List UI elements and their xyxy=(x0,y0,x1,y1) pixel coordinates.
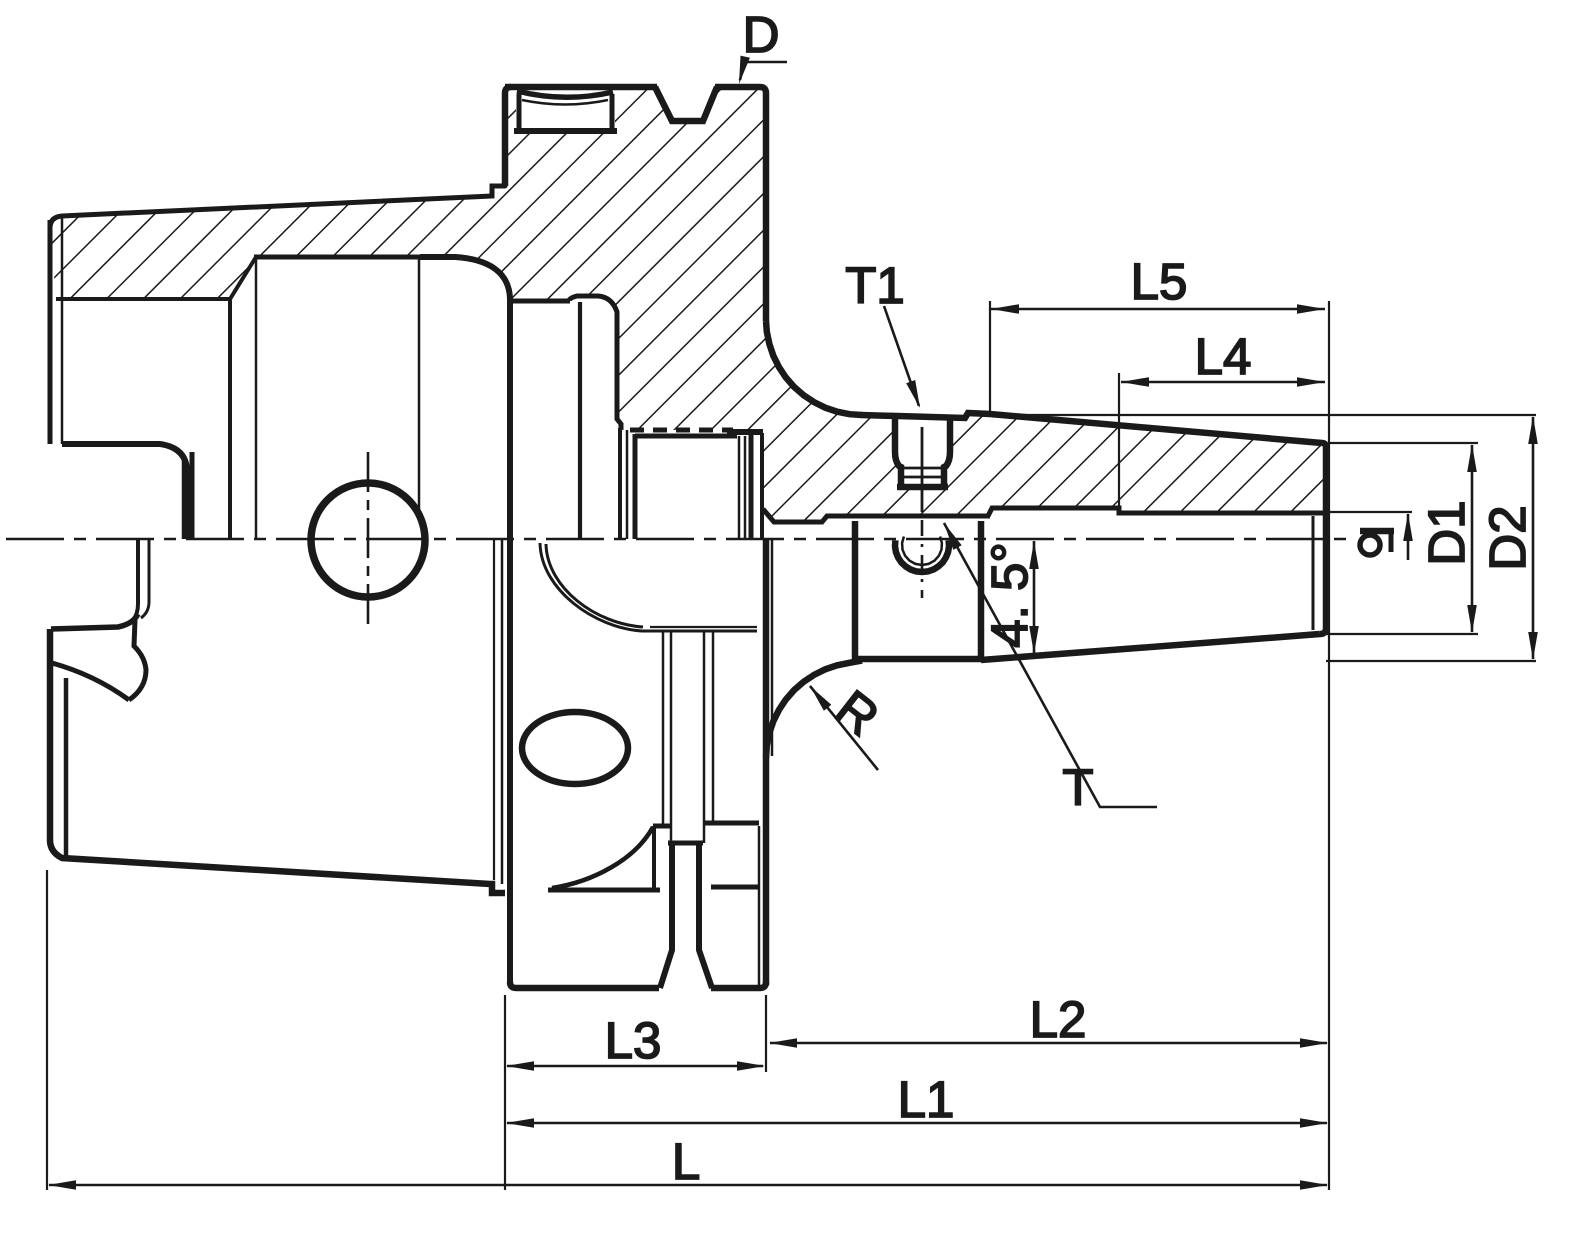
svg-text:4. 5°: 4. 5° xyxy=(981,542,1038,647)
svg-text:D2: D2 xyxy=(1479,505,1536,570)
svg-text:T1: T1 xyxy=(845,257,905,314)
svg-text:L1: L1 xyxy=(898,1071,955,1128)
svg-text:L3: L3 xyxy=(605,1012,662,1069)
svg-text:D: D xyxy=(743,6,780,63)
svg-text:L5: L5 xyxy=(1131,253,1188,310)
svg-text:L4: L4 xyxy=(1195,328,1252,385)
svg-text:D1: D1 xyxy=(1418,500,1475,565)
svg-text:T: T xyxy=(1062,759,1093,816)
svg-text:L: L xyxy=(672,1133,700,1190)
svg-text:L2: L2 xyxy=(1030,991,1087,1048)
